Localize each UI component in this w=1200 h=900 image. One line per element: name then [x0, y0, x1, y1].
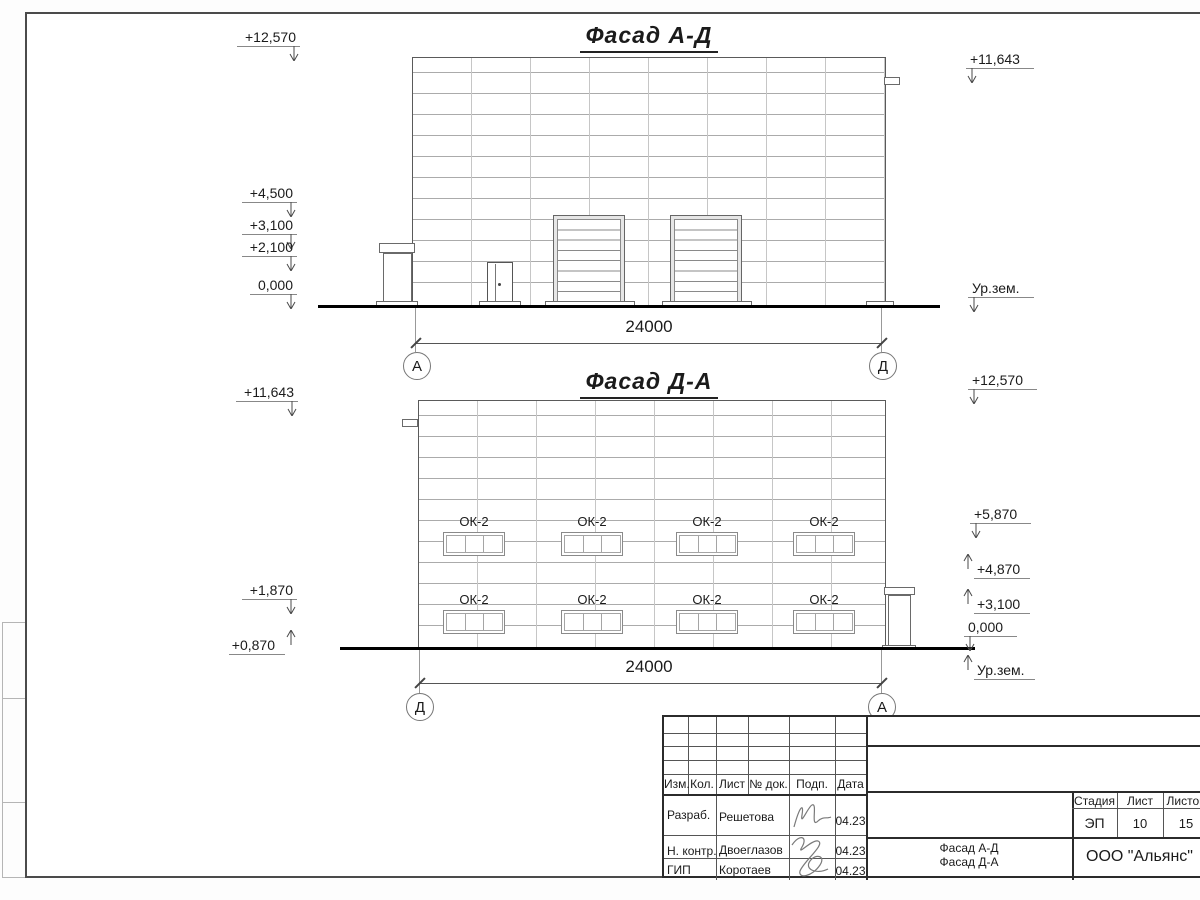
window-pane	[716, 613, 736, 631]
sectional-gate	[670, 215, 742, 306]
facade-ad-title-text: Фасад А-Д	[580, 22, 719, 53]
down-arrow-icon	[285, 599, 297, 614]
ribbon-window	[676, 532, 738, 556]
extension-line	[881, 308, 882, 352]
ground-line	[318, 305, 940, 308]
elevation-value: +1,870	[242, 583, 297, 600]
roof-bracket	[402, 419, 418, 427]
margin-stamp-line	[2, 877, 25, 878]
signature-scribble	[786, 831, 836, 883]
elevation-mark: +11,643	[966, 52, 1034, 83]
sectional-gate	[553, 215, 625, 306]
elevation-value: +5,870	[970, 507, 1031, 524]
window-pane	[583, 535, 603, 553]
elevation-value: +11,643	[966, 52, 1034, 69]
window-pane	[716, 535, 736, 553]
tb-name: Двоеглазов	[719, 843, 783, 857]
elevation-mark: +11,643	[236, 385, 298, 416]
down-arrow-icon	[966, 68, 978, 83]
elevation-value: +4,500	[242, 186, 297, 203]
dimension-line	[420, 683, 882, 684]
elevation-value: +12,570	[968, 373, 1037, 390]
tb-col-podp: Подп.	[789, 777, 835, 791]
elevation-mark: +0,870	[229, 638, 297, 655]
elevation-mark: 0,000	[964, 620, 1017, 651]
tb-name: Коротаев	[719, 863, 771, 877]
window-pane	[815, 535, 835, 553]
tb-date: 04.23	[835, 844, 866, 858]
up-arrow-icon	[962, 655, 974, 670]
tb-role: ГИП	[667, 863, 691, 877]
elevation-mark: +12,570	[237, 30, 300, 61]
ribbon-window	[443, 532, 505, 556]
elevation-mark: +4,870	[962, 562, 1030, 579]
dimension-value: 24000	[549, 657, 749, 677]
tb-stage-label: Стадия	[1072, 794, 1117, 808]
grid-line	[866, 745, 1200, 747]
window-pane	[564, 535, 584, 553]
roof-bracket	[884, 77, 900, 85]
tb-role: Н. контр.	[667, 844, 717, 858]
tb-sheet-value: 10	[1117, 816, 1163, 831]
up-arrow-icon	[285, 630, 297, 645]
extension-line	[881, 650, 882, 693]
elevation-value: +11,643	[236, 385, 298, 402]
window-tag: ОК-2	[561, 514, 623, 529]
elevation-value: +4,870	[974, 562, 1030, 579]
margin-stamp-line	[2, 698, 25, 699]
window-pane	[465, 613, 485, 631]
down-arrow-icon	[285, 294, 297, 309]
elevation-value: 0,000	[964, 620, 1017, 637]
annex-body	[383, 253, 412, 306]
window-pane	[679, 613, 699, 631]
window-pane	[796, 535, 816, 553]
elevation-mark: 0,000	[250, 278, 297, 309]
doc-name-line: Фасад А-Д	[866, 841, 1072, 855]
window-pane	[465, 535, 485, 553]
elevation-mark: Ур.зем.	[968, 281, 1034, 312]
window-pane	[833, 535, 853, 553]
axis-bubble: Д	[406, 693, 434, 721]
grid-line	[664, 760, 866, 761]
elevation-value: +3,100	[974, 597, 1030, 614]
grid-line	[866, 791, 1200, 793]
window-pane	[601, 613, 621, 631]
tb-col-data: Дата	[835, 777, 866, 791]
margin-stamp-line	[2, 802, 25, 803]
window-tag: ОК-2	[793, 592, 855, 607]
door-leaf-line	[495, 264, 496, 304]
grid-line	[1072, 808, 1200, 809]
signature-scribble	[790, 797, 834, 835]
elevation-value: Ур.зем.	[974, 663, 1035, 680]
ribbon-window	[443, 610, 505, 634]
window-tag: ОК-2	[676, 592, 738, 607]
down-arrow-icon	[968, 297, 980, 312]
down-arrow-icon	[288, 46, 300, 61]
grid-line	[664, 733, 866, 734]
ribbon-window	[676, 610, 738, 634]
axis-letter: А	[877, 699, 887, 716]
annex-canopy	[379, 243, 415, 253]
tb-sheet-label: Лист	[1117, 794, 1163, 808]
margin-stamp-line	[2, 622, 3, 878]
tb-doc-name: Фасад А-Д Фасад Д-А	[866, 841, 1072, 869]
window-pane	[833, 613, 853, 631]
tb-col-list: Лист	[716, 777, 748, 791]
window-tag: ОК-2	[793, 514, 855, 529]
facade-da-title: Фасад Д-А	[412, 368, 886, 399]
gate-slats	[557, 219, 621, 302]
tb-role: Разраб.	[667, 808, 710, 822]
tb-date: 04.23	[835, 814, 866, 828]
elevation-value: +2,100	[242, 240, 297, 257]
window-pane	[679, 535, 699, 553]
window-pane	[815, 613, 835, 631]
elevation-mark: +12,570	[968, 373, 1037, 404]
entrance-door	[487, 262, 513, 306]
grid-line	[664, 794, 866, 796]
window-tag: ОК-2	[561, 592, 623, 607]
elevation-mark: +4,500	[242, 186, 297, 217]
elevation-mark: +1,870	[242, 583, 297, 614]
up-arrow-icon	[962, 589, 974, 604]
door-handle	[498, 283, 501, 286]
tb-stage-value: ЭП	[1072, 815, 1117, 831]
facade-ad-title: Фасад А-Д	[412, 22, 886, 53]
ground-line	[340, 647, 975, 650]
dimension-line	[416, 343, 882, 344]
tb-date: 04.23	[835, 864, 866, 878]
ribbon-window	[561, 610, 623, 634]
facade-ad-building	[412, 57, 886, 308]
tb-sheets-value: 15	[1163, 816, 1200, 831]
window-pane	[446, 535, 466, 553]
window-pane	[483, 613, 503, 631]
annex-canopy	[884, 587, 915, 595]
annex-body	[888, 595, 911, 649]
window-pane	[601, 535, 621, 553]
grid-line	[664, 746, 866, 747]
window-tag: ОК-2	[443, 592, 505, 607]
facade-da-title-text: Фасад Д-А	[580, 368, 719, 399]
elevation-mark: Ур.зем.	[962, 663, 1035, 680]
ribbon-window	[561, 532, 623, 556]
down-arrow-icon	[970, 523, 982, 538]
gate-slats	[674, 219, 738, 302]
extension-line	[419, 650, 420, 693]
down-arrow-icon	[285, 202, 297, 217]
doc-name-line: Фасад Д-А	[866, 855, 1072, 869]
up-arrow-icon	[962, 554, 974, 569]
elevation-value: Ур.зем.	[968, 281, 1034, 298]
window-pane	[698, 613, 718, 631]
drawing-sheet: { "facade_top": { "title": "Фасад А-Д", …	[0, 0, 1200, 900]
tb-sheets-label: Листов	[1163, 794, 1200, 808]
tb-name: Решетова	[719, 810, 774, 824]
elevation-value: +3,100	[242, 218, 297, 235]
window-pane	[698, 535, 718, 553]
tb-col-kol: Кол.	[688, 777, 716, 791]
extension-line	[415, 308, 416, 352]
elevation-value: +12,570	[237, 30, 300, 47]
window-tag: ОК-2	[443, 514, 505, 529]
window-pane	[583, 613, 603, 631]
axis-letter: Д	[415, 699, 425, 716]
down-arrow-icon	[285, 256, 297, 271]
dimension-value: 24000	[549, 317, 749, 337]
ribbon-window	[793, 532, 855, 556]
window-pane	[564, 613, 584, 631]
window-pane	[796, 613, 816, 631]
down-arrow-icon	[968, 389, 980, 404]
tb-col-ndok: № док.	[748, 777, 789, 791]
ribbon-window	[793, 610, 855, 634]
window-pane	[446, 613, 466, 631]
margin-stamp-line	[2, 622, 25, 623]
window-pane	[483, 535, 503, 553]
window-tag: ОК-2	[676, 514, 738, 529]
grid-line	[664, 774, 866, 775]
down-arrow-icon	[964, 636, 976, 651]
elevation-mark: +2,100	[242, 240, 297, 271]
elevation-value: 0,000	[250, 278, 297, 295]
tb-company: ООО "Альянс"	[1072, 848, 1200, 866]
down-arrow-icon	[286, 401, 298, 416]
elevation-mark: +5,870	[970, 507, 1031, 538]
title-block: Изм. Кол. Лист № док. Подп. Дата Разраб.…	[662, 715, 1200, 878]
grid-line	[866, 837, 1200, 839]
elevation-value: +0,870	[229, 638, 285, 655]
tb-col-izm: Изм.	[664, 777, 688, 791]
elevation-mark: +3,100	[962, 597, 1030, 614]
